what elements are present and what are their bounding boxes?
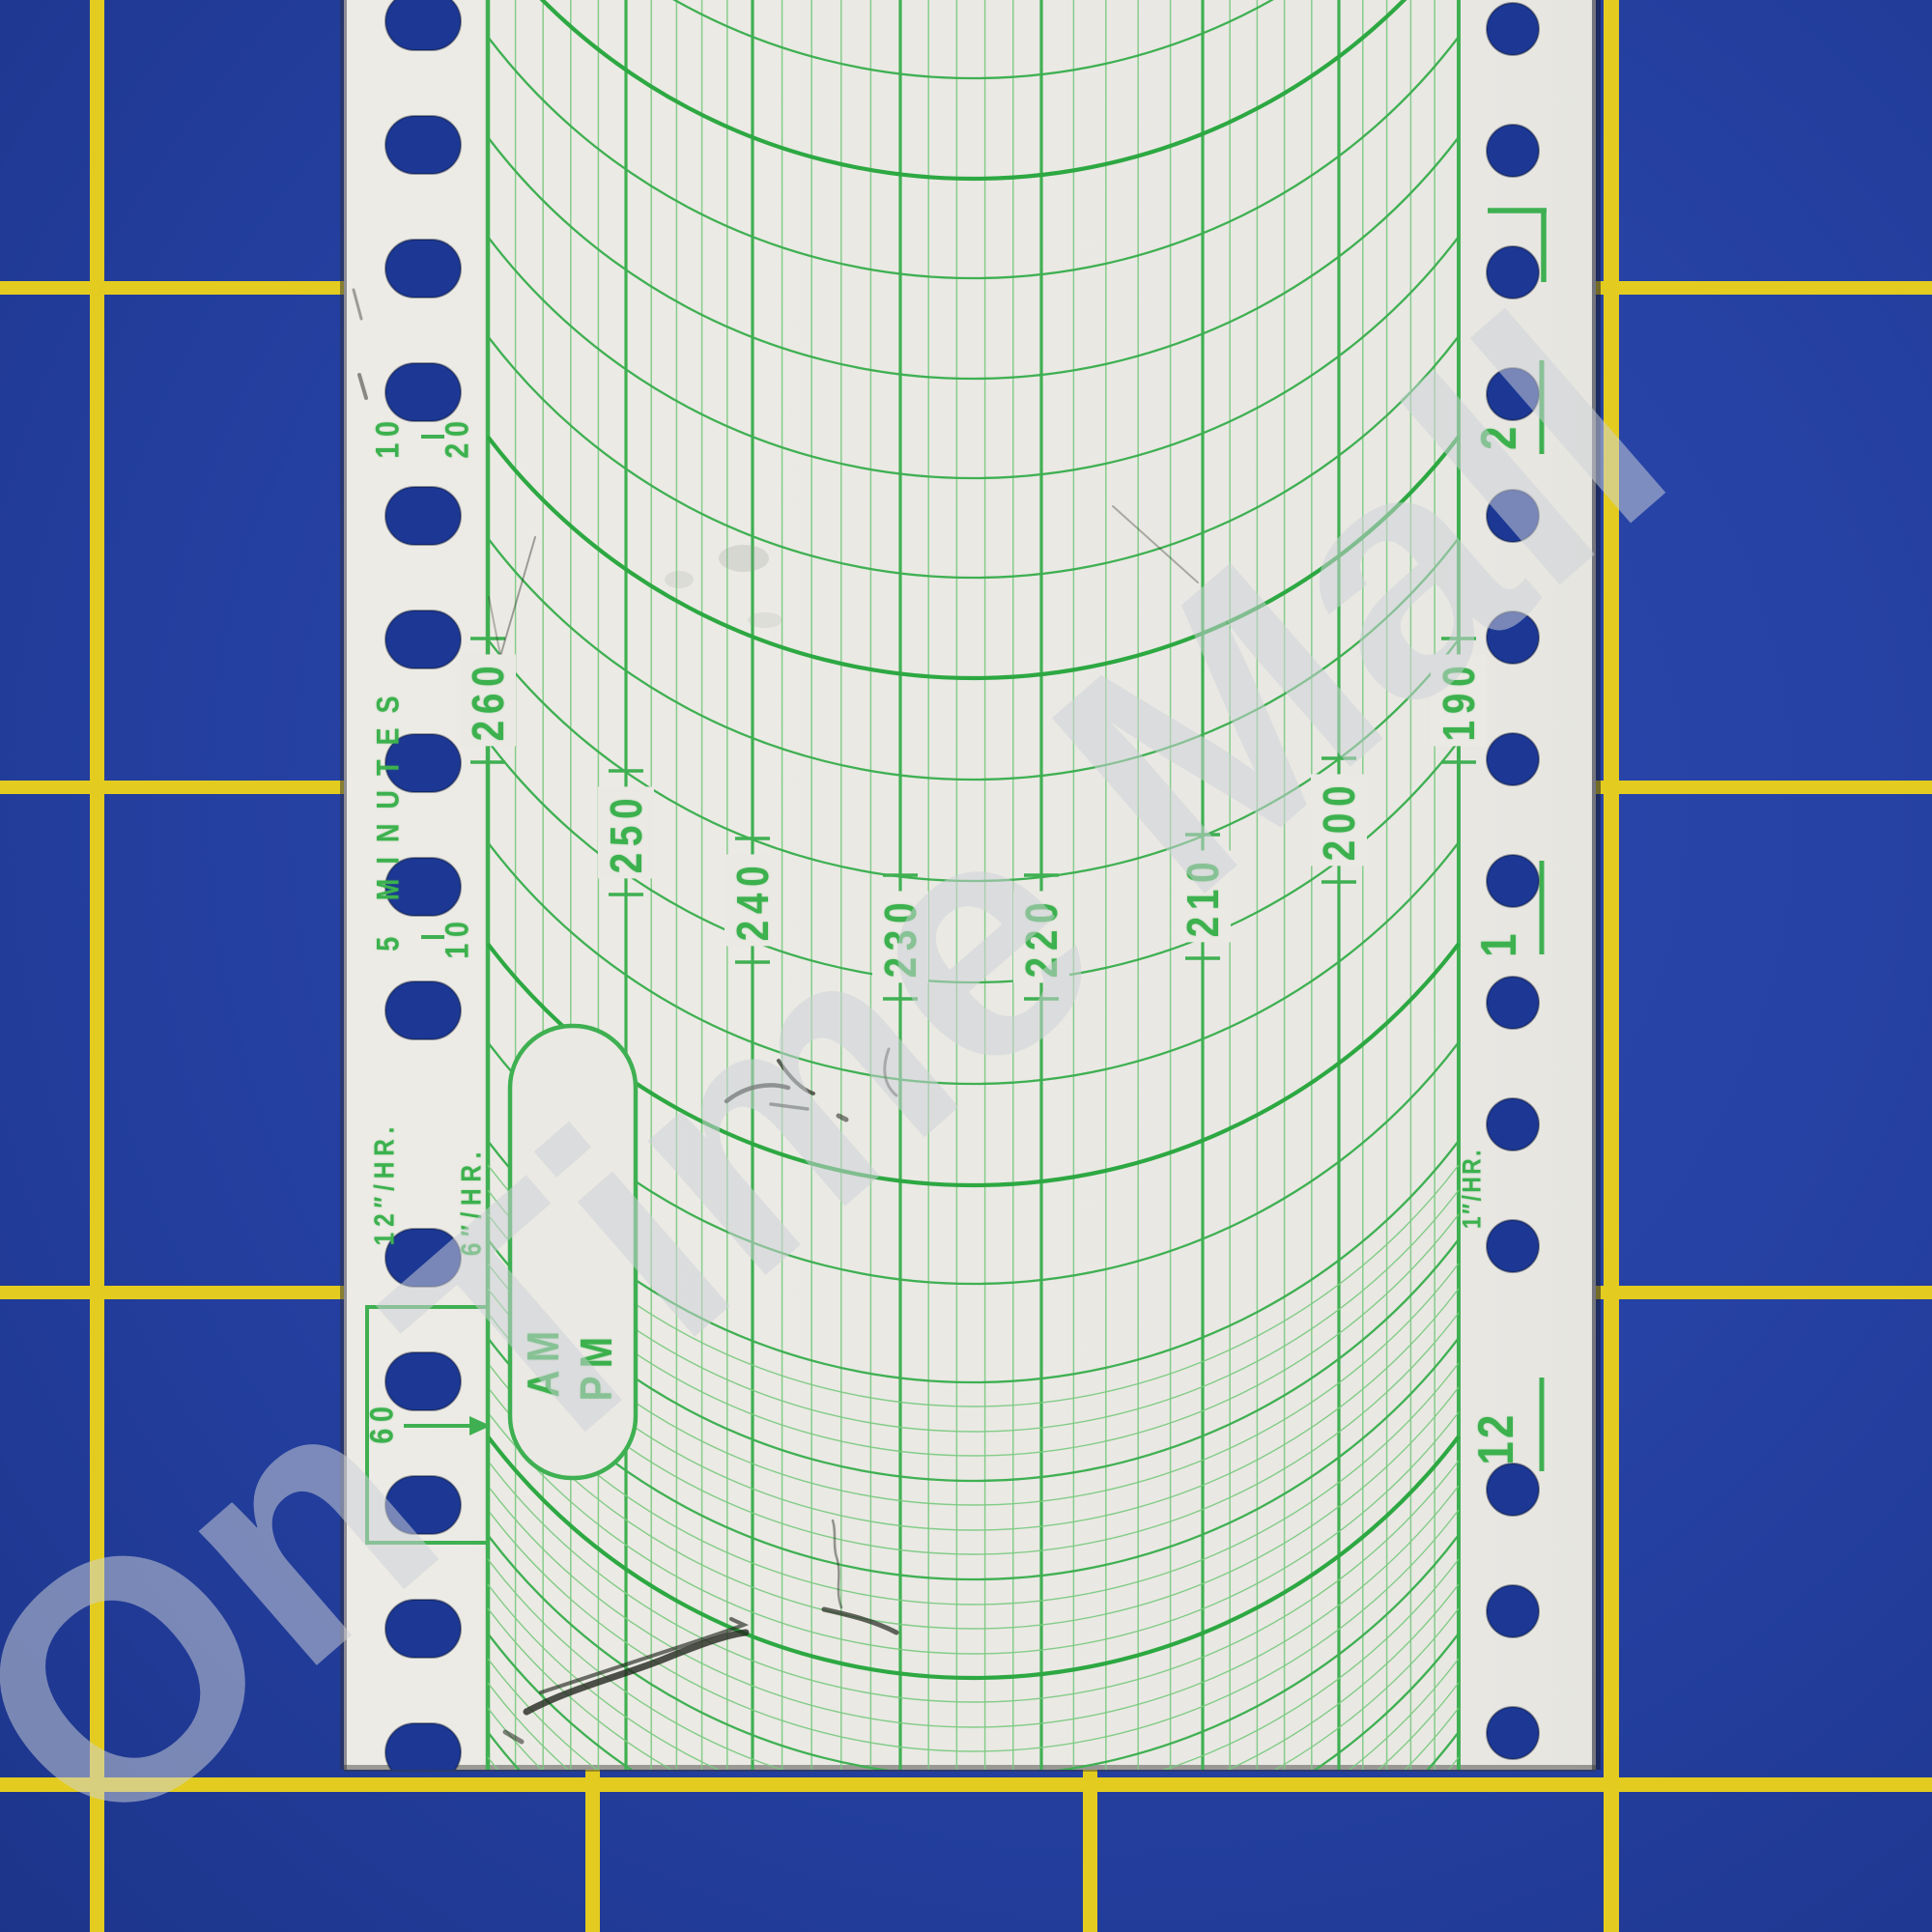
scene-canvas [0, 0, 1932, 1932]
scale-label-210: 210 [1175, 851, 1231, 943]
hour-label-2: 2 [1470, 423, 1528, 450]
sprocket-hole-left [385, 0, 461, 50]
photo-strip-chart-on-cutting-mat: 260 250 240 230 220 210 200 190 2 1 12 1… [0, 0, 1932, 1932]
sprocket-hole-right [1487, 1463, 1539, 1516]
minute-label-10-mid: 10 [440, 915, 477, 958]
sprocket-hole-right [1487, 1220, 1539, 1272]
pm-label: PM [570, 1329, 622, 1402]
sprocket-hole-right [1487, 1585, 1539, 1637]
paper-left-edge-shadow [340, 0, 347, 1770]
hour-label-1: 1 [1470, 930, 1528, 957]
minutes-scale-label: 5 MINUTES [371, 681, 407, 951]
time-arc-minor [488, 1781, 1459, 1932]
speed-label-12in-hr: 12″/HR. [370, 1122, 402, 1246]
sprocket-hole-left [385, 611, 461, 668]
chart-paper [340, 0, 1601, 1772]
sprocket-hole-left [385, 981, 461, 1039]
am-label: AM [517, 1323, 569, 1398]
sprocket-hole-left [385, 1600, 461, 1658]
speed-label-6in-hr: 6″/HR. [457, 1146, 489, 1256]
sprocket-hole-left [385, 240, 461, 298]
hour-label-12: 12 [1467, 1411, 1525, 1464]
sprocket-hole-right [1487, 490, 1539, 542]
sprocket-hole-right [1487, 246, 1539, 298]
scale-label-200: 200 [1311, 775, 1367, 867]
paper-right-edge-shadow [1592, 0, 1601, 1770]
sprocket-hole-left [385, 1476, 461, 1534]
scale-label-250: 250 [598, 787, 654, 879]
smudge-mark [748, 612, 782, 628]
minute-label-60: 60 [364, 1400, 402, 1443]
sprocket-hole-right [1487, 3, 1539, 55]
sprocket-hole-right [1487, 977, 1539, 1029]
sprocket-hole-right [1487, 733, 1539, 785]
sprocket-hole-right [1487, 1707, 1539, 1759]
speed-label-1in-hr: 1″/HR. [1458, 1148, 1488, 1229]
am-pm-pill [510, 1026, 636, 1478]
smudge-mark [665, 571, 694, 588]
scale-label-260: 260 [460, 655, 516, 747]
sprocket-hole-right [1487, 1098, 1539, 1151]
sprocket-hole-right [1487, 855, 1539, 907]
scale-label-230: 230 [872, 892, 928, 983]
sprocket-hole-right [1487, 611, 1539, 664]
sprocket-hole-left [385, 116, 461, 174]
sprocket-hole-left [385, 363, 461, 421]
scale-label-220: 220 [1013, 892, 1069, 983]
sprocket-hole-left [385, 487, 461, 545]
minute-label-20: 20 [440, 414, 477, 458]
sprocket-hole-right [1487, 368, 1539, 420]
smudge-mark [719, 545, 769, 572]
smudge-mark [512, 1858, 570, 1881]
minute-label-10-top: 10 [370, 414, 408, 458]
sprocket-hole-right [1487, 125, 1539, 177]
scale-label-190: 190 [1431, 655, 1487, 747]
scale-label-240: 240 [724, 855, 781, 947]
sprocket-hole-left [385, 1723, 461, 1781]
mat-horizontal-line [0, 1777, 1932, 1792]
paper-sheet [344, 0, 1596, 1770]
